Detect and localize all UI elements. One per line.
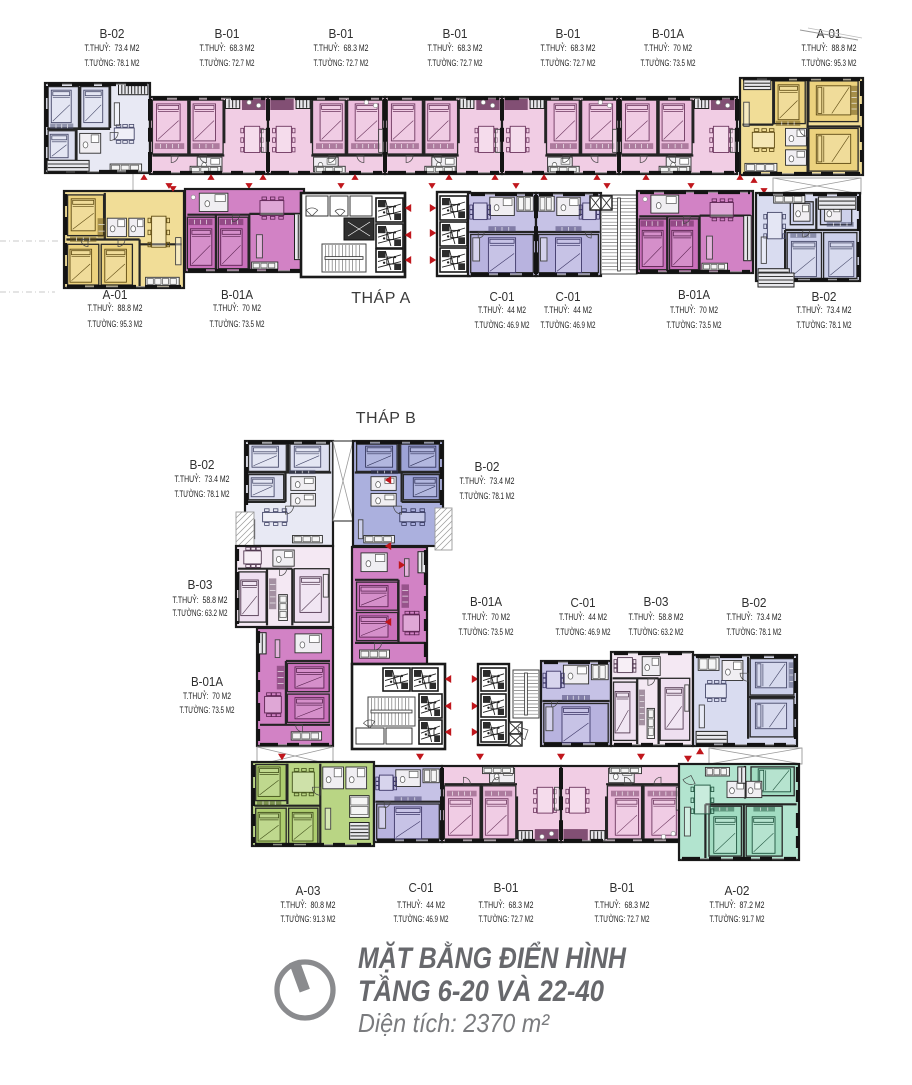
svg-text:B-03: B-03: [644, 594, 669, 609]
svg-text:T.TƯỜNG: 78.1 M2: T.TƯỜNG: 78.1 M2: [175, 489, 230, 499]
svg-text:B-01A: B-01A: [221, 287, 253, 302]
svg-text:B-01: B-01: [556, 26, 581, 41]
svg-text:B-01: B-01: [443, 26, 468, 41]
svg-text:T.THUỶ: 73.4 M2: T.THUỶ: 73.4 M2: [797, 304, 852, 315]
svg-text:C-01: C-01: [409, 880, 434, 895]
svg-text:T.THUỶ: 68.3 M2: T.THUỶ: 68.3 M2: [479, 899, 534, 910]
svg-text:T.THUỶ: 58.8 M2: T.THUỶ: 58.8 M2: [173, 594, 228, 605]
svg-text:T.THUỶ: 73.4 M2: T.THUỶ: 73.4 M2: [85, 42, 140, 53]
svg-text:B-01: B-01: [610, 880, 635, 895]
svg-text:T.TƯỜNG: 46.9 M2: T.TƯỜNG: 46.9 M2: [475, 320, 530, 330]
svg-text:T.THUỶ: 68.3 M2: T.THUỶ: 68.3 M2: [595, 899, 650, 910]
svg-text:T.TƯỜNG: 72.7 M2: T.TƯỜNG: 72.7 M2: [595, 914, 650, 924]
svg-text:B-01: B-01: [329, 26, 354, 41]
svg-text:T.THUỶ: 70 M2: T.THUỶ: 70 M2: [670, 304, 718, 315]
svg-text:B-01: B-01: [494, 880, 519, 895]
svg-text:TẦNG 6-20 VÀ 22-40: TẦNG 6-20 VÀ 22-40: [358, 974, 604, 1008]
svg-text:B-01A: B-01A: [470, 594, 502, 609]
svg-text:T.THUỶ: 87.2 M2: T.THUỶ: 87.2 M2: [710, 899, 765, 910]
svg-text:B-03: B-03: [188, 577, 213, 592]
svg-text:T.THUỶ: 44 M2: T.THUỶ: 44 M2: [559, 611, 607, 622]
svg-text:T.TƯỜNG: 46.9 M2: T.TƯỜNG: 46.9 M2: [541, 320, 596, 330]
svg-text:B-02: B-02: [100, 26, 125, 41]
svg-text:T.TƯỜNG: 63.2 M2: T.TƯỜNG: 63.2 M2: [173, 608, 228, 618]
svg-text:MẶT BẰNG ĐIỂN HÌNH: MẶT BẰNG ĐIỂN HÌNH: [358, 941, 627, 975]
svg-text:T.TƯỜNG: 78.1 M2: T.TƯỜNG: 78.1 M2: [727, 627, 782, 637]
svg-text:T.THUỶ: 68.3 M2: T.THUỶ: 68.3 M2: [314, 42, 369, 53]
svg-text:T.THUỶ: 68.3 M2: T.THUỶ: 68.3 M2: [541, 42, 596, 53]
svg-text:T.TƯỜNG: 46.9 M2: T.TƯỜNG: 46.9 M2: [556, 627, 611, 637]
svg-text:T.TƯỜNG: 72.7 M2: T.TƯỜNG: 72.7 M2: [541, 58, 596, 68]
svg-text:T.TƯỜNG: 72.7 M2: T.TƯỜNG: 72.7 M2: [479, 914, 534, 924]
svg-text:T.THUỶ: 88.8 M2: T.THUỶ: 88.8 M2: [802, 42, 857, 53]
svg-text:T.THUỶ: 70 M2: T.THUỶ: 70 M2: [183, 690, 231, 701]
svg-text:T.THUỶ: 44 M2: T.THUỶ: 44 M2: [397, 899, 445, 910]
svg-text:A-02: A-02: [725, 883, 750, 898]
svg-text:T.TƯỜNG: 73.5 M2: T.TƯỜNG: 73.5 M2: [459, 627, 514, 637]
svg-text:T.THUỶ: 88.8 M2: T.THUỶ: 88.8 M2: [88, 302, 143, 313]
svg-text:B-02: B-02: [742, 595, 767, 610]
svg-text:T.THUỶ: 70 M2: T.THUỶ: 70 M2: [644, 42, 692, 53]
svg-text:T.THUỶ: 58.8 M2: T.THUỶ: 58.8 M2: [629, 611, 684, 622]
svg-text:T.TƯỜNG: 95.3 M2: T.TƯỜNG: 95.3 M2: [88, 319, 143, 329]
svg-text:T.TƯỜNG: 73.5 M2: T.TƯỜNG: 73.5 M2: [667, 320, 722, 330]
svg-text:T.THUỶ: 80.8 M2: T.THUỶ: 80.8 M2: [281, 899, 336, 910]
svg-text:T.THUỶ: 73.4 M2: T.THUỶ: 73.4 M2: [727, 611, 782, 622]
svg-text:T.THUỶ: 68.3 M2: T.THUỶ: 68.3 M2: [200, 42, 255, 53]
svg-text:T.THUỶ: 70 M2: T.THUỶ: 70 M2: [213, 302, 261, 313]
svg-text:T.TƯỜNG: 78.1 M2: T.TƯỜNG: 78.1 M2: [460, 491, 515, 501]
svg-text:T.TƯỜNG: 73.5 M2: T.TƯỜNG: 73.5 M2: [180, 705, 235, 715]
svg-text:THÁP A: THÁP A: [351, 288, 411, 307]
svg-text:T.TƯỜNG: 91.3 M2: T.TƯỜNG: 91.3 M2: [281, 914, 336, 924]
svg-text:T.TƯỜNG: 63.2 M2: T.TƯỜNG: 63.2 M2: [629, 627, 684, 637]
svg-text:B-01A: B-01A: [191, 674, 223, 689]
svg-text:A-03: A-03: [296, 883, 321, 898]
svg-text:T.TƯỜNG: 73.5 M2: T.TƯỜNG: 73.5 M2: [210, 319, 265, 329]
svg-text:T.TƯỜNG: 72.7 M2: T.TƯỜNG: 72.7 M2: [428, 58, 483, 68]
svg-text:T.THUỶ: 44 M2: T.THUỶ: 44 M2: [544, 304, 592, 315]
svg-text:B-02: B-02: [475, 459, 500, 474]
svg-text:C-01: C-01: [490, 289, 515, 304]
svg-text:C-01: C-01: [571, 595, 596, 610]
svg-text:T.TƯỜNG: 72.7 M2: T.TƯỜNG: 72.7 M2: [314, 58, 369, 68]
svg-text:T.TƯỜNG: 91.7 M2: T.TƯỜNG: 91.7 M2: [710, 914, 765, 924]
svg-text:T.THUỶ: 70 M2: T.THUỶ: 70 M2: [462, 611, 510, 622]
svg-text:B-02: B-02: [812, 289, 837, 304]
svg-text:T.THUỶ: 44 M2: T.THUỶ: 44 M2: [478, 304, 526, 315]
svg-text:Diện tích: 2370 m²: Diện tích: 2370 m²: [358, 1008, 550, 1038]
svg-text:T.TƯỜNG: 78.1 M2: T.TƯỜNG: 78.1 M2: [85, 58, 140, 68]
svg-text:T.TƯỜNG: 78.1 M2: T.TƯỜNG: 78.1 M2: [797, 320, 852, 330]
svg-text:T.THUỶ: 68.3 M2: T.THUỶ: 68.3 M2: [428, 42, 483, 53]
svg-text:C-01: C-01: [556, 289, 581, 304]
svg-text:B-01A: B-01A: [678, 287, 710, 302]
svg-text:B-02: B-02: [190, 457, 215, 472]
svg-text:T.TƯỜNG: 73.5 M2: T.TƯỜNG: 73.5 M2: [641, 58, 696, 68]
svg-text:THÁP B: THÁP B: [356, 408, 417, 427]
svg-text:T.TƯỜNG: 72.7 M2: T.TƯỜNG: 72.7 M2: [200, 58, 255, 68]
svg-text:T.THUỶ: 73.4 M2: T.THUỶ: 73.4 M2: [460, 475, 515, 486]
svg-text:T.THUỶ: 73.4 M2: T.THUỶ: 73.4 M2: [175, 473, 230, 484]
svg-text:T.TƯỜNG: 46.9 M2: T.TƯỜNG: 46.9 M2: [394, 914, 449, 924]
svg-text:T.TƯỜNG: 95.3 M2: T.TƯỜNG: 95.3 M2: [802, 58, 857, 68]
svg-text:B-01: B-01: [215, 26, 240, 41]
svg-text:A-01: A-01: [103, 287, 128, 302]
svg-text:B-01A: B-01A: [652, 26, 684, 41]
